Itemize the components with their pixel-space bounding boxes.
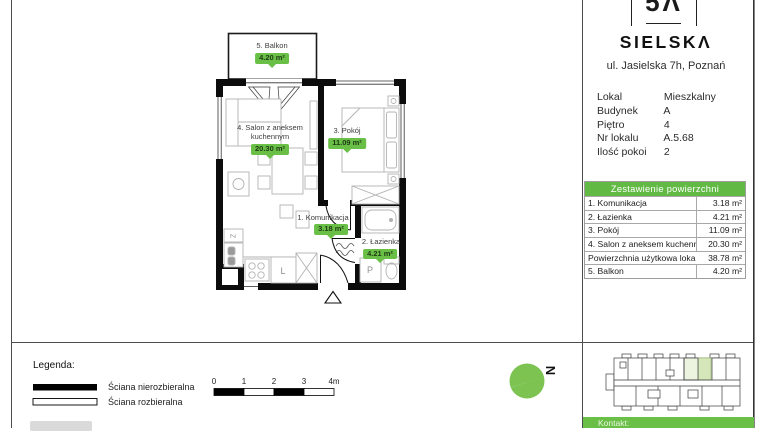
detail-label: Ilość pokoi	[597, 146, 661, 160]
detail-label: Lokal	[597, 91, 661, 105]
entrance-marker	[325, 292, 341, 304]
row-value: 20.30 m²	[696, 238, 745, 251]
table-row: 5. Balkon 4.20 m²	[585, 264, 745, 278]
legend-item-solid-wall: Ściana nierozbieralna	[108, 382, 195, 392]
row-label: 3. Pokój	[585, 224, 696, 237]
logo-monogram-box: 5Λ	[631, 0, 697, 20]
bottom-left-cropped-box	[30, 421, 92, 431]
scale-bar	[214, 389, 334, 396]
detail-value: 2	[664, 146, 670, 158]
detail-value: A.5.68	[663, 132, 693, 144]
area-table-title: Zestawienie powierzchni	[585, 182, 745, 196]
contact-label: Kontakt:	[583, 417, 754, 429]
room-label-salon: 4. Salon z aneksem kuchennym	[231, 124, 309, 141]
contact-bar: Kontakt:	[583, 417, 754, 428]
room-label-pokoj: 3. Pokój	[333, 127, 360, 136]
toilet	[384, 257, 399, 279]
row-label: 4. Salon z aneksem kuchennym	[585, 238, 696, 251]
table-row: 1. Komunikacja 3.18 m²	[585, 196, 745, 210]
area-badge-pokoj: 11.09 m²	[328, 138, 366, 149]
brand-wordmark: SIELSKΛ	[620, 32, 712, 53]
legend-swatches	[33, 384, 97, 405]
compass-north-label: N	[543, 366, 558, 375]
unit-details: Lokal Mieszkalny Budynek A Piętro 4 Nr l…	[597, 91, 716, 160]
logo-monogram: 5Λ	[645, 0, 683, 17]
row-value: 38.78 m²	[696, 252, 745, 265]
room-label-komunikacja: 1. Komunikacja	[297, 214, 348, 223]
row-value: 4.20 m²	[696, 265, 745, 278]
armchair	[228, 172, 249, 196]
detail-label: Nr lokalu	[597, 132, 661, 146]
floorplan-card: { "header": { "logo_monogram": "5Λ", "br…	[0, 0, 760, 428]
detail-label: Piętro	[597, 119, 661, 133]
cabinet-label: Z	[229, 234, 236, 238]
row-value: 3.18 m²	[696, 197, 745, 210]
row-value: 4.21 m²	[696, 211, 745, 224]
detail-row-pietro: Piętro 4	[597, 119, 716, 133]
area-badge-salon: 20.30 m²	[251, 144, 289, 155]
wardrobe-bedroom	[352, 186, 399, 204]
table-row: 4. Salon z aneksem kuchennym 20.30 m²	[585, 237, 745, 251]
compass-icon	[500, 364, 545, 399]
room-label-balkon: 5. Balkon	[256, 42, 287, 51]
area-badge-komunikacja: 3.18 m²	[314, 224, 348, 235]
bathtub	[362, 207, 399, 233]
tv-cabinet	[310, 101, 317, 149]
detail-value: A	[663, 105, 670, 117]
washer-label: P	[367, 265, 373, 275]
detail-label: Budynek	[597, 105, 661, 119]
area-summary-table: Zestawienie powierzchni 1. Komunikacja 3…	[584, 181, 746, 279]
fridge-label: L	[280, 266, 285, 276]
address-line: ul. Jasielska 7h, Poznań	[607, 60, 726, 72]
legend-item-removable-wall: Ściana rozbieralna	[108, 397, 183, 407]
detail-row-budynek: Budynek A	[597, 105, 716, 119]
area-badge-lazienka: 4.21 m²	[363, 249, 397, 260]
detail-row-ilosc-pokoi: Ilość pokoi 2	[597, 146, 716, 160]
scale-tick-3: 3	[302, 377, 306, 386]
stove	[245, 259, 269, 281]
scale-tick-1: 1	[242, 377, 246, 386]
row-label: 5. Balkon	[585, 265, 696, 278]
scale-tick-0: 0	[212, 377, 216, 386]
building-minimap	[606, 354, 740, 410]
detail-value: Mieszkalny	[664, 91, 716, 103]
area-badge-balkon: 4.20 m²	[255, 53, 289, 64]
table-row: 3. Pokój 11.09 m²	[585, 223, 745, 237]
detail-value: 4	[664, 119, 670, 131]
row-label: Powierzchnia użytkowa lokalu	[585, 252, 696, 265]
row-label: 2. Łazienka	[585, 211, 696, 224]
wardrobe-hall	[296, 253, 317, 283]
detail-row-nr-lokalu: Nr lokalu A.5.68	[597, 132, 716, 146]
row-value: 11.09 m²	[696, 224, 745, 237]
scale-tick-2: 2	[272, 377, 276, 386]
table-row-total: Powierzchnia użytkowa lokalu 38.78 m²	[585, 251, 745, 265]
table-row: 2. Łazienka 4.21 m²	[585, 210, 745, 224]
room-label-lazienka: 2. Łazienka	[362, 238, 400, 247]
scale-tick-4: 4m	[328, 377, 339, 386]
legend-title: Legenda:	[33, 360, 75, 371]
corner-niche	[222, 269, 238, 285]
row-label: 1. Komunikacja	[585, 197, 696, 210]
detail-row-lokal: Lokal Mieszkalny	[597, 91, 716, 105]
minimap-unit-highlight	[698, 358, 711, 380]
